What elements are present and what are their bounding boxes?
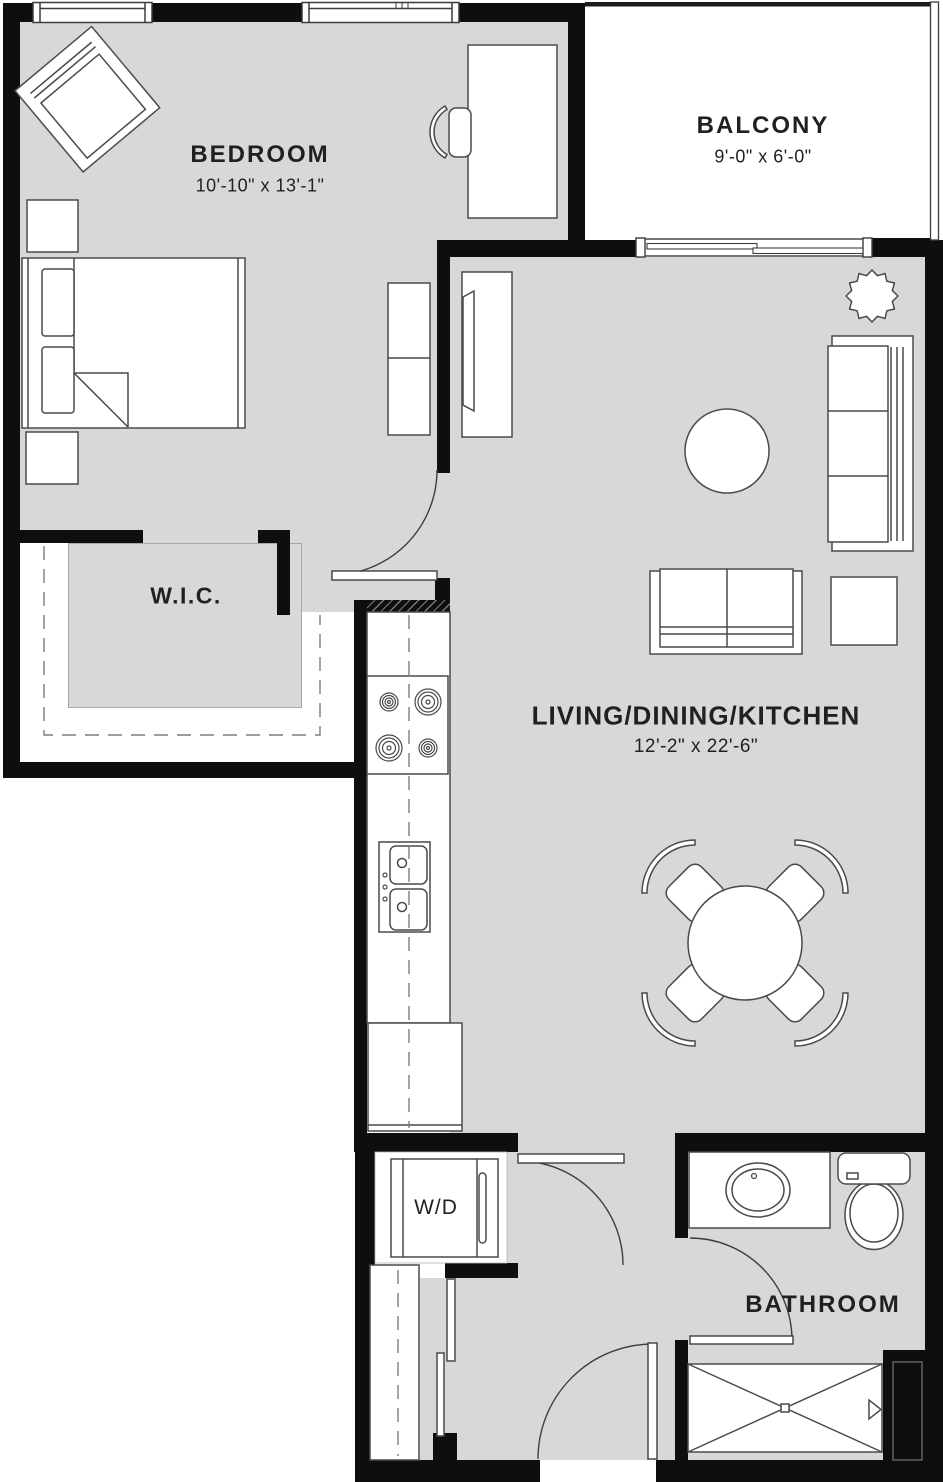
kitchen-sink — [379, 842, 430, 932]
shaft-inner — [893, 1362, 922, 1460]
pillow — [42, 269, 74, 336]
balcony-rail-top — [585, 2, 938, 7]
pillow — [42, 347, 74, 413]
label-living: LIVING/DINING/KITCHEN — [532, 701, 861, 732]
sofa — [828, 336, 913, 551]
wd-door-leaf — [518, 1154, 624, 1163]
window-bedroom-right — [302, 3, 459, 23]
balcony-sliding-door — [636, 238, 872, 257]
wd-handle — [479, 1173, 486, 1243]
nightstand — [26, 432, 78, 484]
dresser — [388, 283, 430, 435]
dining-set — [642, 840, 848, 1046]
entry-door-arc — [538, 1344, 653, 1459]
wic-rod-line — [44, 546, 320, 735]
label-bedroom-dims: 10'-10" x 13'-1" — [196, 176, 325, 197]
nightstand — [27, 200, 78, 252]
side-table — [831, 577, 897, 645]
shower-tub — [688, 1364, 882, 1452]
label-bathroom: BATHROOM — [745, 1291, 901, 1319]
dashed-lines — [44, 546, 409, 1456]
pocket-door — [437, 1279, 455, 1436]
entry-closet — [370, 1265, 419, 1460]
dining-table — [688, 886, 802, 1000]
plant — [846, 270, 898, 322]
toilet — [838, 1153, 910, 1250]
bedroom-door-arc — [332, 470, 437, 575]
bedroom-door-leaf — [332, 571, 437, 580]
loveseat — [650, 569, 802, 654]
coffee-table — [685, 409, 769, 493]
label-wic: W.I.C. — [150, 583, 222, 610]
cooktop — [367, 676, 448, 774]
tv — [463, 291, 474, 411]
plan-linework — [0, 0, 943, 1482]
label-balcony: BALCONY — [697, 112, 830, 140]
floor-plan: BEDROOM 10'-10" x 13'-1" BALCONY 9'-0" x… — [0, 0, 943, 1482]
armchair — [15, 26, 160, 171]
window-bedroom-left — [33, 3, 152, 23]
bathroom-door-arc — [690, 1238, 792, 1340]
vanity — [689, 1152, 830, 1228]
desk — [468, 45, 557, 218]
balcony-rail-right — [931, 2, 939, 240]
fridge — [368, 1023, 462, 1131]
desk-chair — [430, 106, 471, 158]
entry-door-leaf — [648, 1343, 657, 1459]
flush-button — [847, 1173, 858, 1179]
bathroom-door-leaf — [690, 1336, 793, 1344]
tv-console — [462, 272, 512, 437]
wd-door-arc — [519, 1161, 623, 1265]
label-bedroom: BEDROOM — [190, 141, 329, 169]
label-wd: W/D — [414, 1196, 458, 1220]
label-living-dims: 12'-2" x 22'-6" — [634, 736, 758, 758]
bed — [22, 258, 245, 428]
label-balcony-dims: 9'-0" x 6'-0" — [714, 147, 811, 168]
